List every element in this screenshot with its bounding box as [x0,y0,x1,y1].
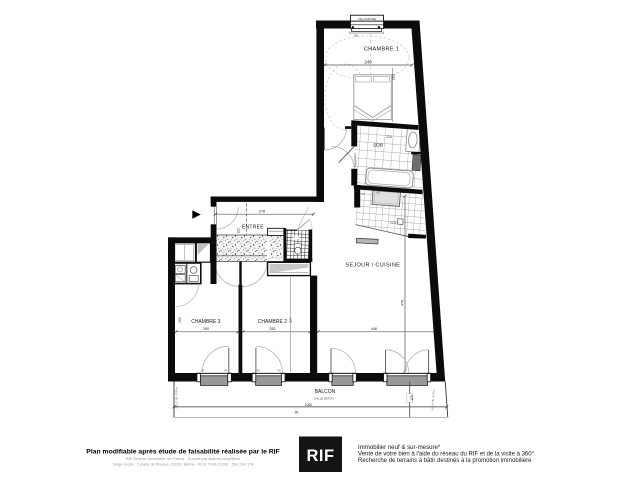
svg-text:SDB: SDB [373,142,383,148]
svg-text:290: 290 [203,327,209,331]
svg-text:Vente de votre bien à l'aide d: Vente de votre bien à l'aide du réseau d… [358,452,535,458]
svg-text:377: 377 [289,317,293,323]
svg-text:60: 60 [295,411,299,415]
svg-text:216: 216 [386,135,392,139]
svg-text:220: 220 [237,228,241,234]
svg-text:VR+COFFRE: VR+COFFRE [358,17,376,21]
svg-text:292: 292 [390,73,395,80]
svg-text:VR: VR [278,370,282,373]
svg-text:VR: VR [224,370,228,373]
svg-text:Recherche de terrains à bâtir: Recherche de terrains à bâtir destinés à… [358,458,532,464]
svg-text:LL: LL [362,192,366,196]
svg-text:WC: WC [293,236,302,242]
svg-text:CHAMBRE 1: CHAMBRE 1 [364,46,399,52]
svg-text:260: 260 [178,317,182,323]
svg-text:252: 252 [270,327,276,331]
svg-text:SEJOUR / CUISINE: SEJOUR / CUISINE [345,263,400,269]
svg-text:CHAMBRE 2: CHAMBRE 2 [258,319,287,325]
svg-text:DALLE HE +0.02 m: DALLE HE +0.02 m [176,388,179,409]
svg-text:Immobilier neuf & sur-mesure*: Immobilier neuf & sur-mesure* [358,444,441,451]
svg-text:VR: VR [257,370,261,373]
svg-text:BALCON: BALCON [315,389,336,395]
svg-text:240: 240 [364,60,372,65]
svg-text:DALLE BETON: DALLE BETON [314,396,333,400]
svg-text:4.2: 4.2 [376,191,381,195]
svg-text:CHAMBRE 3: CHAMBRE 3 [191,319,220,325]
svg-text:446: 446 [371,327,377,331]
svg-text:Siège social : 1 place de Paus: Siège social : 1 place de Pauses, 31130,… [112,462,254,467]
svg-text:120: 120 [410,395,414,401]
svg-text:CLA: CLA [390,221,397,225]
svg-text:RIF Réseau Immobilier de Fran: RIF Réseau Immobilier de France - Sociét… [126,456,240,461]
svg-text:1060: 1060 [305,403,313,407]
svg-text:VR: VR [201,370,205,373]
svg-text:Plan modifiable après étude de: Plan modifiable après étude de faisabili… [86,449,279,456]
svg-text:278: 278 [259,209,265,213]
svg-text:dégagement: dégagement [353,153,357,168]
svg-text:476: 476 [400,300,404,306]
svg-text:90: 90 [355,34,359,38]
svg-text:ENTREE: ENTREE [242,224,264,230]
svg-text:RIF: RIF [306,447,334,465]
